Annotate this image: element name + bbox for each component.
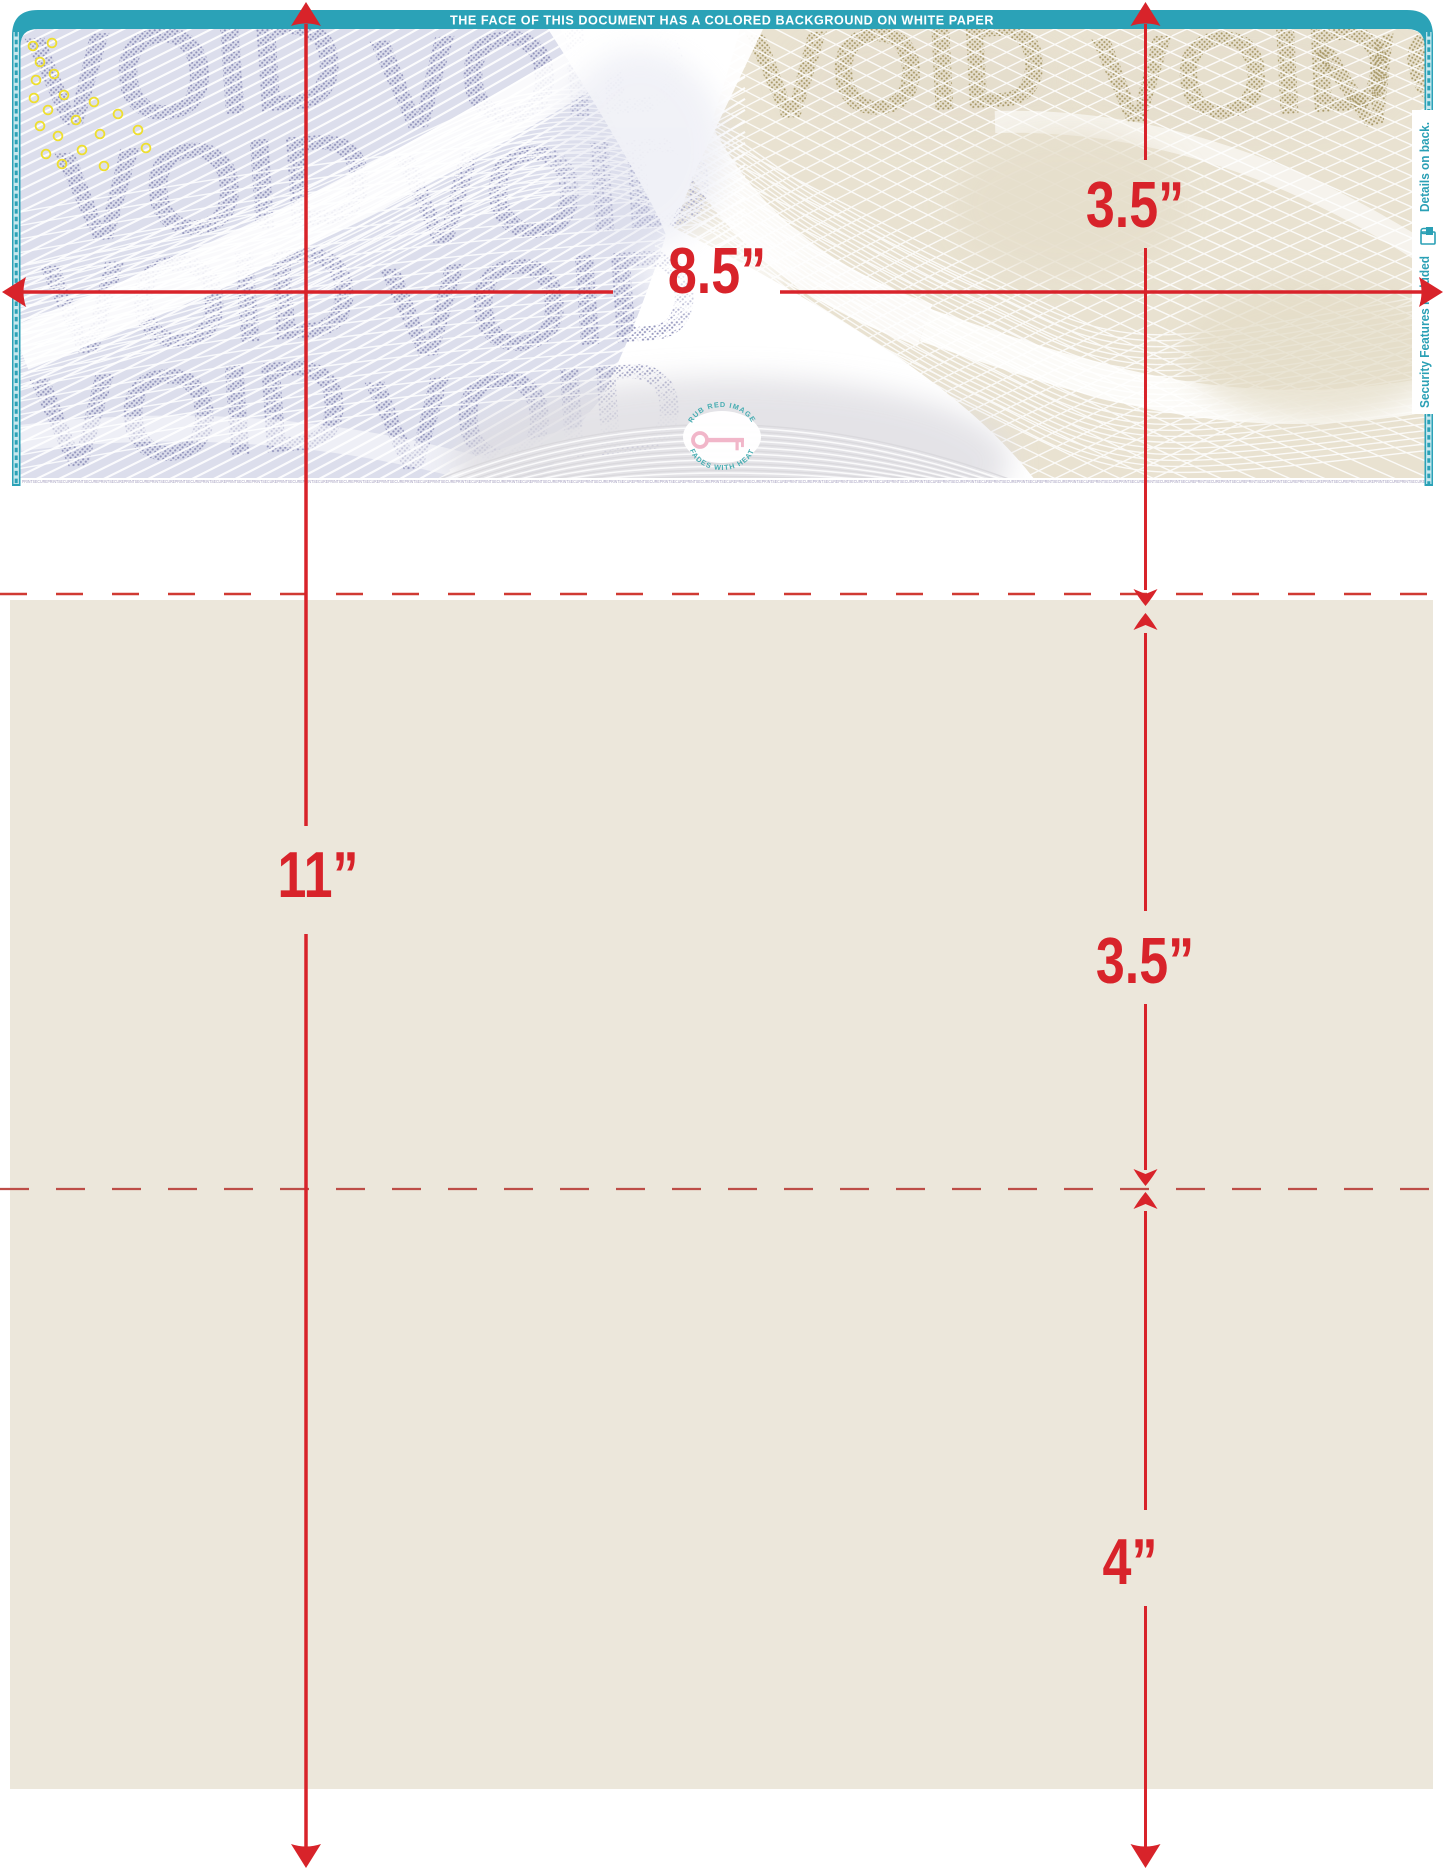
svg-text:3.5”: 3.5” (1096, 926, 1194, 998)
svg-text:Details on back.: Details on back. (1417, 122, 1432, 212)
svg-text:8.5”: 8.5” (668, 236, 766, 308)
svg-text:3.5”: 3.5” (1086, 170, 1184, 242)
svg-text:4”: 4” (1103, 1527, 1158, 1599)
svg-text:THE FACE OF THIS DOCUMENT HAS: THE FACE OF THIS DOCUMENT HAS A COLORED … (450, 14, 994, 28)
svg-text:Security Features Included: Security Features Included (1417, 256, 1432, 408)
svg-text:11”: 11” (278, 840, 359, 912)
svg-text:PRINTSECUREPRINTSECUREPRINTSEC: PRINTSECUREPRINTSECUREPRINTSECUREPRINTSE… (22, 479, 1425, 484)
